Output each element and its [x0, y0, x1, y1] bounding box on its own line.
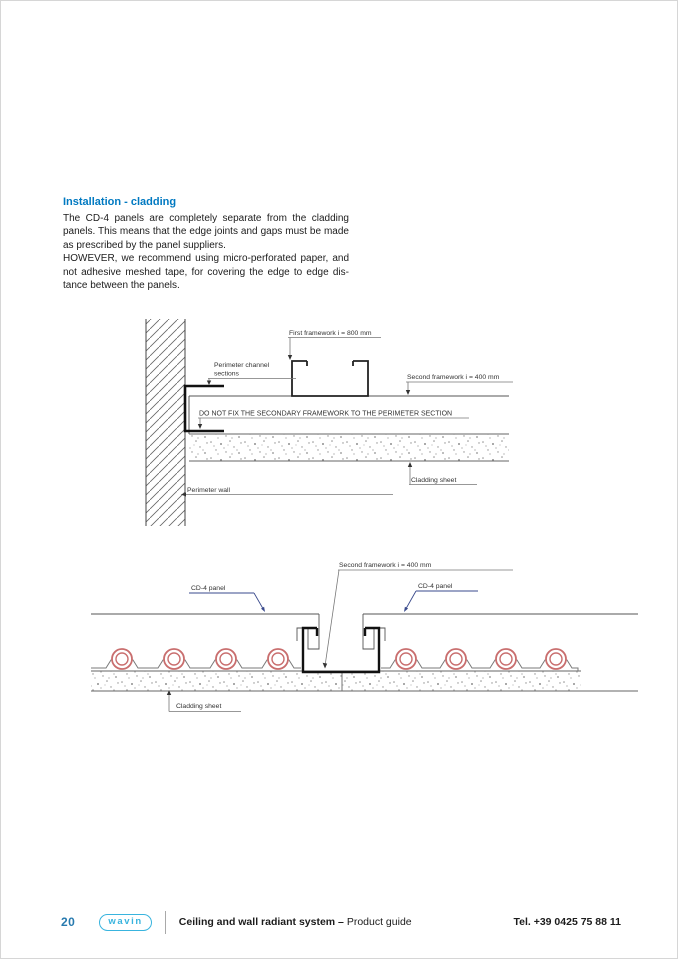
intro-line: not adhesive meshed tape, for covering t…: [63, 266, 349, 279]
page-number: 20: [61, 915, 75, 929]
label-perimeter-wall: Perimeter wall: [181, 487, 393, 497]
footer-title: Ceiling and wall radiant system – Produc…: [179, 916, 412, 928]
pipes: [112, 649, 566, 669]
svg-text:sections: sections: [214, 371, 240, 378]
label-second-framework: Second framework i = 400 mm: [406, 374, 513, 395]
intro-line: HOWEVER, we recommend using micro-perfor…: [63, 252, 349, 265]
first-framework-channel: [292, 361, 368, 396]
label-cd4-panel-left: CD-4 panel: [189, 585, 265, 612]
perimeter-wall-hatch: [146, 319, 185, 526]
document-page: Installation - cladding The CD-4 panels …: [0, 0, 678, 959]
pipe-cross-section: [112, 649, 132, 669]
svg-text:Cladding sheet: Cladding sheet: [176, 703, 221, 710]
svg-text:Perimeter channel: Perimeter channel: [214, 362, 270, 369]
svg-text:Perimeter wall: Perimeter wall: [187, 487, 231, 494]
pipe-cross-section: [396, 649, 416, 669]
diagram-perimeter-wall-section: First framework i = 800 mm Perimeter cha…: [141, 311, 651, 531]
svg-text:Cladding sheet: Cladding sheet: [411, 477, 456, 484]
svg-text:CD-4 panel: CD-4 panel: [191, 585, 226, 592]
svg-text:Second framework i = 400 mm: Second framework i = 400 mm: [407, 374, 500, 381]
leader-arrow: [261, 607, 265, 612]
svg-text:DO NOT FIX THE SECONDARY FRAME: DO NOT FIX THE SECONDARY FRAMEWORK TO TH…: [199, 411, 452, 418]
footer-phone: Tel. +39 0425 75 88 11: [513, 916, 621, 928]
label-cladding-sheet: Cladding sheet: [408, 462, 477, 485]
intro-line: The CD-4 panels are completely separate …: [63, 212, 349, 225]
leader-arrow: [323, 663, 328, 669]
leader-arrow: [288, 355, 292, 360]
diagram-panel-joint-section: Second framework i = 400 mm CD-4 panel C…: [86, 551, 646, 726]
leader-arrow: [404, 607, 408, 612]
leader-arrow: [408, 462, 412, 467]
label-second-framework: Second framework i = 400 mm: [323, 562, 513, 669]
label-cd4-panel-right: CD-4 panel: [404, 583, 478, 612]
intro-line: tance between the panels.: [63, 279, 349, 292]
label-perimeter-channel: Perimeter channel sections: [207, 362, 296, 385]
wavin-logo: wavin: [99, 914, 151, 931]
section-heading: Installation - cladding: [63, 196, 349, 208]
page-footer: 20 wavin Ceiling and wall radiant system…: [61, 907, 621, 937]
svg-text:CD-4 panel: CD-4 panel: [418, 583, 453, 590]
panel-edge-trim-left: [297, 614, 319, 649]
pipe-cross-section: [216, 649, 236, 669]
pipe-cross-section: [446, 649, 466, 669]
pipe-cross-section: [496, 649, 516, 669]
label-do-not-fix: DO NOT FIX THE SECONDARY FRAMEWORK TO TH…: [198, 411, 469, 430]
cladding-sheet-band: [91, 671, 638, 691]
pipe-cross-section: [164, 649, 184, 669]
pipe-cross-section: [268, 649, 288, 669]
second-framework-channel: [303, 628, 379, 672]
svg-text:First framework i = 800 mm: First framework i = 800 mm: [289, 330, 372, 337]
footer-divider: [165, 911, 166, 934]
footer-title-regular: Product guide: [347, 916, 412, 928]
pipe-cross-section: [546, 649, 566, 669]
svg-text:Second framework i = 400 mm: Second framework i = 400 mm: [339, 562, 432, 569]
leader-arrow: [207, 381, 211, 386]
label-cladding-sheet: Cladding sheet: [167, 690, 241, 711]
footer-title-bold: Ceiling and wall radiant system –: [179, 916, 344, 928]
intro-line: as prescribed by the panel suppliers.: [63, 239, 349, 252]
perimeter-channel-profile: [185, 386, 224, 431]
leader-arrow: [406, 390, 410, 395]
intro-section: Installation - cladding The CD-4 panels …: [63, 196, 349, 292]
intro-line: panels. This means that the edge joints …: [63, 225, 349, 238]
label-first-framework: First framework i = 800 mm: [288, 330, 381, 360]
leader-arrow: [198, 424, 202, 429]
cladding-sheet-band: [189, 434, 509, 461]
panel-edge-trim-right: [363, 614, 385, 649]
